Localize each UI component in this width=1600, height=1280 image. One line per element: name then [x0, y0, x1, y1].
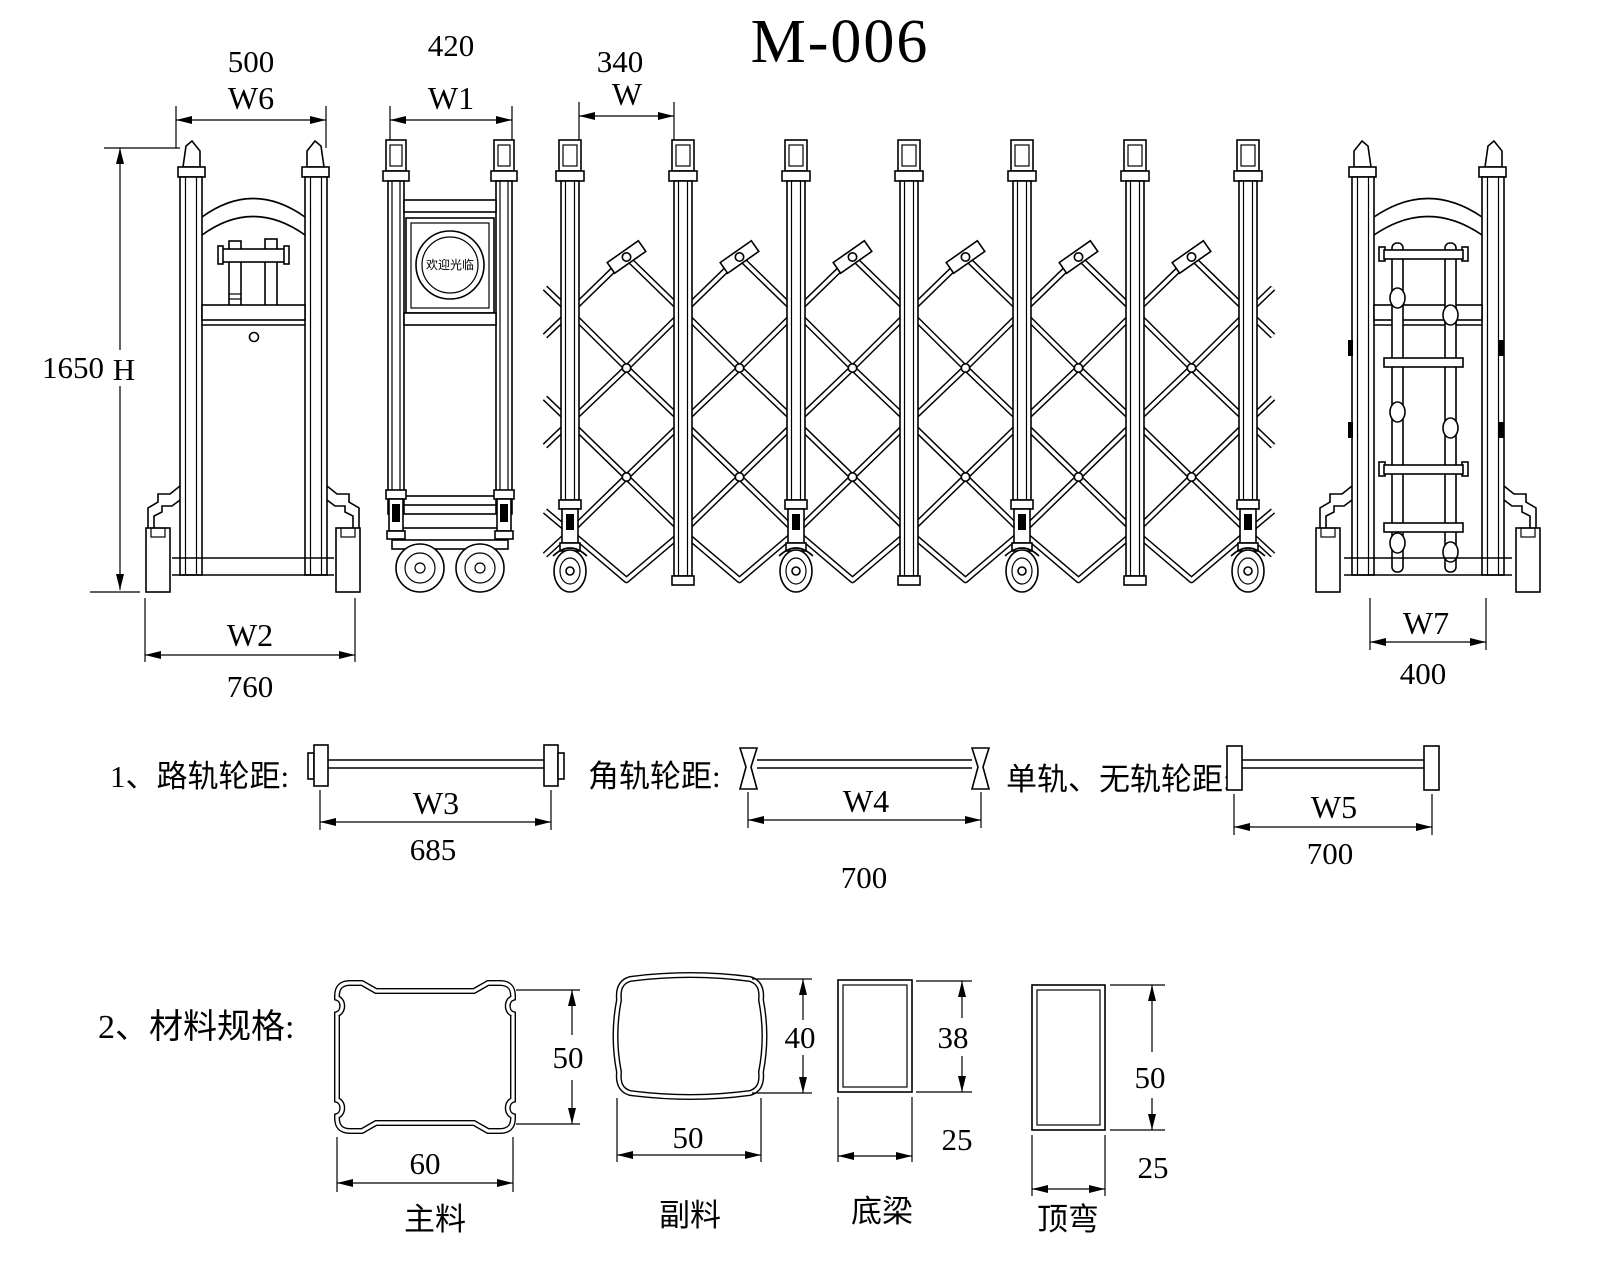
track-angle-dim-value: 700 — [841, 860, 888, 895]
front-view: 420 W1 欢迎光临 — [383, 28, 517, 592]
gate-accordion-section: 340 W — [545, 44, 1273, 592]
profile-main-name: 主料 — [404, 1202, 466, 1237]
keyhole — [250, 333, 259, 342]
track-spec-rail: 1、路轨轮距: W3 685 — [110, 745, 564, 867]
page-title: M-006 — [751, 8, 930, 76]
track-single-dim-value: 700 — [1307, 836, 1354, 871]
profile-top-bend-width: 25 — [1138, 1150, 1169, 1185]
dim-left-base-label: W2 — [227, 617, 273, 653]
profile-main-width: 60 — [410, 1146, 441, 1181]
profile-top-bend: 50 25 顶弯 — [1032, 985, 1169, 1237]
right-side-view: W7 400 — [1316, 141, 1540, 691]
profile-main: 50 60 主料 — [337, 983, 584, 1237]
dim-left-width-label: W6 — [228, 80, 274, 116]
dim-left-base-value: 760 — [227, 669, 274, 704]
dim-right-base-value: 400 — [1400, 656, 1447, 691]
pickets — [553, 140, 1265, 592]
profile-bottom-beam-name: 底梁 — [851, 1194, 913, 1229]
front-wheel-right — [456, 544, 504, 592]
profile-top-bend-name: 顶弯 — [1037, 1202, 1099, 1237]
track-single-dim-label: W5 — [1311, 789, 1357, 825]
dim-pitch-label: W — [612, 76, 643, 112]
track-rail-dim-label: W3 — [413, 785, 459, 821]
folded-gate-ladder — [1379, 243, 1468, 572]
dim-left-height-value: 1650 — [42, 350, 104, 385]
track-spec-angle: 角轨轮距: W4 700 — [588, 748, 989, 895]
profile-top-bend-height: 50 — [1135, 1060, 1166, 1095]
arch-top — [202, 199, 305, 218]
welcome-sign-text: 欢迎光临 — [426, 257, 474, 272]
track-single-label: 单轨、无轨轮距: — [1006, 762, 1232, 797]
profile-secondary-height: 40 — [785, 1020, 816, 1055]
dim-left-width-value: 500 — [228, 44, 275, 79]
finial-left — [183, 141, 200, 167]
handle-bar — [222, 249, 285, 262]
track-angle-dim-label: W4 — [843, 783, 889, 819]
track-angle-label: 角轨轮距: — [588, 759, 721, 794]
dim-front-width-value: 420 — [428, 28, 475, 63]
profile-bottom-beam-width: 25 — [942, 1122, 973, 1157]
technical-drawing: M-006 500 W6 1650 H — [0, 0, 1600, 1280]
profile-main-height: 50 — [553, 1040, 584, 1075]
material-specs: 2、材料规格: 50 60 主料 40 50 — [98, 975, 1169, 1237]
left-side-view: 500 W6 1650 H — [42, 44, 360, 704]
material-specs-heading: 2、材料规格: — [98, 1008, 294, 1046]
dim-front-width-label: W1 — [428, 80, 474, 116]
profile-secondary: 40 50 副料 — [616, 975, 816, 1233]
profile-bottom-beam-height: 38 — [938, 1020, 969, 1055]
drawing-sheet: M-006 500 W6 1650 H — [0, 0, 1600, 1280]
track-rail-label: 1、路轨轮距: — [110, 759, 289, 794]
finial-right — [307, 141, 324, 167]
track-rail-dim-value: 685 — [410, 832, 457, 867]
profile-secondary-name: 副料 — [659, 1198, 721, 1233]
front-wheel-left — [396, 544, 444, 592]
dim-left-height-label: H — [113, 352, 135, 387]
dim-pitch-value: 340 — [597, 44, 644, 79]
profile-secondary-width: 50 — [673, 1120, 704, 1155]
track-spec-single: 单轨、无轨轮距: W5 700 — [1006, 746, 1439, 871]
profile-bottom-beam: 38 25 底梁 — [838, 980, 973, 1229]
dim-right-base-label: W7 — [1403, 605, 1449, 641]
